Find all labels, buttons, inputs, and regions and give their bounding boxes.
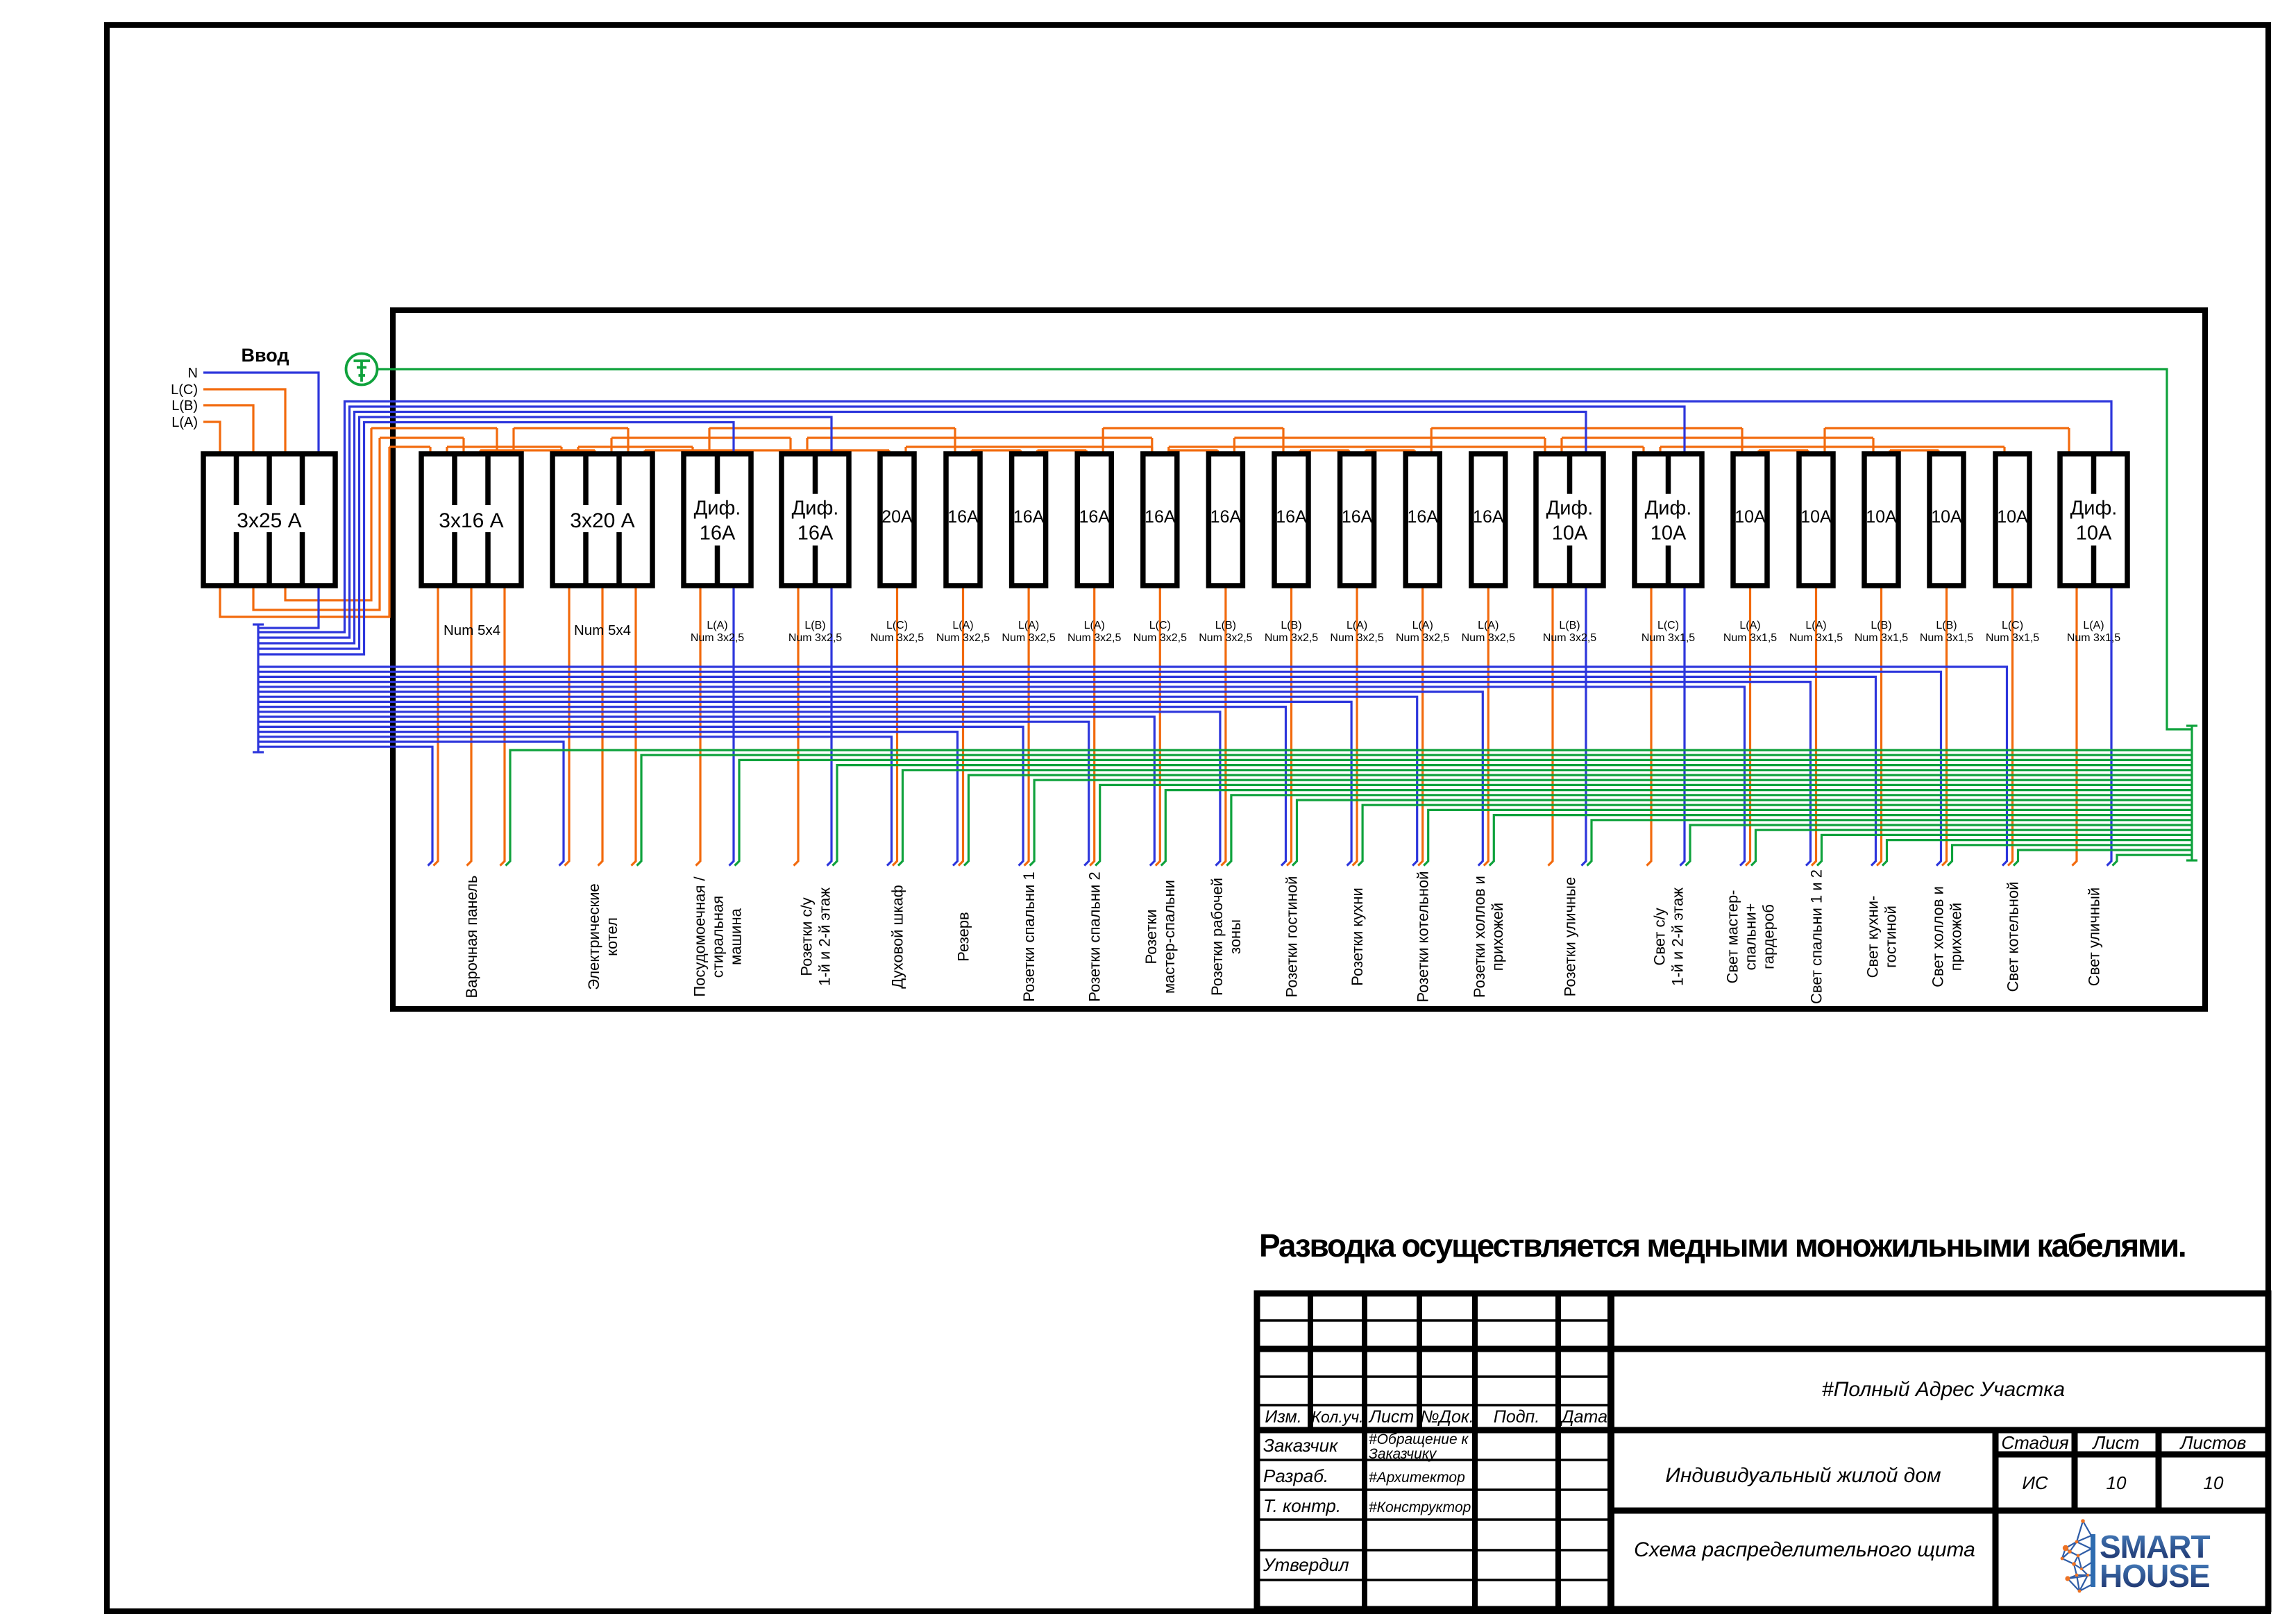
svg-text:Свет холлов и: Свет холлов и bbox=[1929, 886, 1946, 987]
svg-text:L(B): L(B) bbox=[1936, 620, 1957, 631]
svg-text:Num 3x1,5: Num 3x1,5 bbox=[1789, 632, 1843, 644]
svg-text:Розетки гостиной: Розетки гостиной bbox=[1283, 876, 1300, 998]
svg-text:HOUSE: HOUSE bbox=[2100, 1558, 2210, 1594]
svg-text:L(A): L(A) bbox=[2083, 620, 2104, 631]
svg-text:Диф.: Диф. bbox=[1645, 497, 1692, 519]
svg-text:Розетки холлов и: Розетки холлов и bbox=[1471, 876, 1488, 998]
svg-text:L(C): L(C) bbox=[2002, 620, 2023, 631]
svg-text:Розетки спальни 2: Розетки спальни 2 bbox=[1086, 872, 1104, 1001]
svg-text:Num 3x2,5: Num 3x2,5 bbox=[1265, 632, 1318, 644]
svg-text:L(B): L(B) bbox=[1559, 620, 1580, 631]
svg-text:Розетки уличные: Розетки уличные bbox=[1561, 877, 1578, 996]
svg-text:3x20 А: 3x20 А bbox=[570, 509, 634, 532]
svg-text:L(C): L(C) bbox=[171, 382, 198, 398]
svg-text:16А: 16А bbox=[1473, 507, 1504, 527]
svg-text:10А: 10А bbox=[1800, 507, 1832, 527]
svg-text:L(B): L(B) bbox=[1281, 620, 1301, 631]
svg-text:16А: 16А bbox=[1276, 507, 1307, 527]
svg-text:16А: 16А bbox=[1407, 507, 1438, 527]
svg-text:Розетки рабочей: Розетки рабочей bbox=[1208, 878, 1226, 996]
svg-text:3x16 А: 3x16 А bbox=[439, 509, 503, 532]
svg-text:L(A): L(A) bbox=[952, 620, 973, 631]
svg-text:1-й и 2-й этаж: 1-й и 2-й этаж bbox=[816, 887, 833, 986]
svg-text:L(B): L(B) bbox=[804, 620, 825, 631]
svg-text:Num 3x1,5: Num 3x1,5 bbox=[1641, 632, 1695, 644]
svg-text:Num 3x1,5: Num 3x1,5 bbox=[1986, 632, 2039, 644]
svg-text:Num 3x2,5: Num 3x2,5 bbox=[1067, 632, 1121, 644]
svg-text:Духовой шкаф: Духовой шкаф bbox=[888, 885, 906, 989]
svg-text:Num 3x1,5: Num 3x1,5 bbox=[1855, 632, 1908, 644]
svg-text:ИС: ИС bbox=[2022, 1472, 2048, 1493]
svg-text:Заказчик: Заказчик bbox=[1263, 1435, 1339, 1456]
svg-text:Свет мастер-: Свет мастер- bbox=[1723, 890, 1741, 983]
svg-text:#Архитектор: #Архитектор bbox=[1369, 1470, 1465, 1486]
svg-text:Индивидуальный жилой дом: Индивидуальный жилой дом bbox=[1665, 1464, 1941, 1487]
svg-text:16А: 16А bbox=[1145, 507, 1176, 527]
svg-text:L(A): L(A) bbox=[1018, 620, 1039, 631]
svg-text:Заказчику: Заказчику bbox=[1369, 1446, 1437, 1462]
svg-text:Num 3x1,5: Num 3x1,5 bbox=[2067, 632, 2120, 644]
svg-text:Свет спальни 1 и 2: Свет спальни 1 и 2 bbox=[1807, 869, 1825, 1004]
svg-text:Num 3x2,5: Num 3x2,5 bbox=[1543, 632, 1596, 644]
svg-text:L(B): L(B) bbox=[171, 398, 198, 414]
svg-text:Num 3x1,5: Num 3x1,5 bbox=[1723, 632, 1777, 644]
svg-text:№Док.: №Док. bbox=[1420, 1407, 1474, 1427]
svg-text:L(B): L(B) bbox=[1215, 620, 1236, 631]
svg-text:16А: 16А bbox=[1342, 507, 1373, 527]
svg-text:Подп.: Подп. bbox=[1494, 1407, 1540, 1427]
svg-text:L(A): L(A) bbox=[707, 620, 727, 631]
svg-text:L(A): L(A) bbox=[171, 415, 198, 430]
svg-text:Разраб.: Разраб. bbox=[1263, 1465, 1328, 1486]
svg-text:Розетки спальни 1: Розетки спальни 1 bbox=[1020, 872, 1038, 1001]
svg-text:L(A): L(A) bbox=[1084, 620, 1105, 631]
svg-text:Свет котельной: Свет котельной bbox=[2004, 882, 2021, 992]
svg-text:стиральная: стиральная bbox=[709, 896, 726, 978]
svg-text:Изм.: Изм. bbox=[1265, 1407, 1301, 1427]
svg-text:20А: 20А bbox=[881, 507, 913, 527]
svg-text:#Обращение к: #Обращение к bbox=[1369, 1431, 1469, 1447]
svg-text:10А: 10А bbox=[2076, 522, 2112, 545]
svg-text:Num 5x4: Num 5x4 bbox=[574, 622, 631, 638]
svg-text:Резерв: Резерв bbox=[954, 912, 972, 961]
svg-text:10А: 10А bbox=[1651, 522, 1687, 545]
svg-text:L(C): L(C) bbox=[1149, 620, 1171, 631]
svg-text:L(A): L(A) bbox=[1412, 620, 1433, 631]
svg-text:мастер-спальни: мастер-спальни bbox=[1160, 880, 1178, 994]
svg-text:10А: 10А bbox=[1552, 522, 1588, 545]
svg-text:Свет уличный: Свет уличный bbox=[2085, 887, 2102, 986]
svg-text:Num 3x2,5: Num 3x2,5 bbox=[1396, 632, 1449, 644]
svg-text:16А: 16А bbox=[947, 507, 979, 527]
svg-text:#Конструктор: #Конструктор bbox=[1369, 1499, 1471, 1515]
svg-text:Утвердил: Утвердил bbox=[1263, 1554, 1349, 1575]
svg-text:10А: 10А bbox=[1931, 507, 1962, 527]
svg-text:Розетки с/у: Розетки с/у bbox=[797, 897, 815, 976]
svg-text:Num 3x2,5: Num 3x2,5 bbox=[1330, 632, 1383, 644]
svg-text:Num 3x2,5: Num 3x2,5 bbox=[1002, 632, 1055, 644]
svg-text:зоны: зоны bbox=[1226, 919, 1244, 954]
svg-text:Num 3x2,5: Num 3x2,5 bbox=[1133, 632, 1187, 644]
svg-text:Диф.: Диф. bbox=[694, 497, 741, 519]
svg-text:L(A): L(A) bbox=[1347, 620, 1367, 631]
svg-text:Стадия: Стадия bbox=[2001, 1432, 2068, 1453]
svg-text:16А: 16А bbox=[1079, 507, 1110, 527]
svg-text:Num 3x2,5: Num 3x2,5 bbox=[788, 632, 842, 644]
svg-text:Дата: Дата bbox=[1560, 1407, 1607, 1427]
svg-text:Листов: Листов bbox=[2179, 1432, 2247, 1453]
svg-text:10: 10 bbox=[2204, 1472, 2224, 1493]
svg-text:Ввод: Ввод bbox=[241, 345, 289, 366]
svg-text:Схема распределительного щита: Схема распределительного щита bbox=[1634, 1538, 1975, 1561]
svg-text:Num 3x1,5: Num 3x1,5 bbox=[1920, 632, 1973, 644]
svg-text:1-й и 2-й этаж: 1-й и 2-й этаж bbox=[1669, 887, 1686, 986]
svg-text:Розетки котельной: Розетки котельной bbox=[1415, 871, 1432, 1002]
svg-text:Свет с/у: Свет с/у bbox=[1651, 908, 1668, 965]
svg-text:L(A): L(A) bbox=[1478, 620, 1499, 631]
svg-text:Num 3x2,5: Num 3x2,5 bbox=[936, 632, 990, 644]
svg-text:Свет кухни-: Свет кухни- bbox=[1864, 896, 1881, 978]
svg-text:Посудомоечная /: Посудомоечная / bbox=[691, 876, 708, 996]
svg-text:Num 3x2,5: Num 3x2,5 bbox=[691, 632, 744, 644]
svg-text:16А: 16А bbox=[1210, 507, 1242, 527]
svg-text:10А: 10А bbox=[1997, 507, 2028, 527]
svg-text:спальни+: спальни+ bbox=[1741, 903, 1759, 971]
svg-text:Диф.: Диф. bbox=[792, 497, 839, 519]
svg-text:L(C): L(C) bbox=[886, 620, 908, 631]
svg-text:Разводка осуществляется медным: Разводка осуществляется медными моножиль… bbox=[1259, 1227, 2186, 1264]
svg-text:гостиной: гостиной bbox=[1882, 906, 1899, 968]
svg-text:Num 3x2,5: Num 3x2,5 bbox=[1199, 632, 1252, 644]
svg-text:#Полный Адрес Участка: #Полный Адрес Участка bbox=[1822, 1378, 2065, 1401]
svg-text:машина: машина bbox=[727, 908, 744, 965]
svg-text:L(C): L(C) bbox=[1657, 620, 1679, 631]
svg-text:Num 3x2,5: Num 3x2,5 bbox=[870, 632, 924, 644]
svg-text:прихожей: прихожей bbox=[1947, 903, 1964, 971]
svg-text:L(A): L(A) bbox=[1805, 620, 1826, 631]
svg-text:L(B): L(B) bbox=[1871, 620, 1891, 631]
svg-text:16А: 16А bbox=[700, 522, 736, 545]
svg-text:Розетки: Розетки bbox=[1142, 909, 1160, 964]
svg-text:котел: котел bbox=[603, 917, 621, 956]
svg-text:Num 3x2,5: Num 3x2,5 bbox=[1462, 632, 1515, 644]
svg-text:Диф.: Диф. bbox=[2070, 497, 2118, 519]
svg-text:N: N bbox=[188, 366, 198, 381]
svg-text:гардероб: гардероб bbox=[1759, 904, 1777, 969]
svg-text:10А: 10А bbox=[1734, 507, 1766, 527]
svg-text:Num 5x4: Num 5x4 bbox=[444, 622, 500, 638]
svg-text:10А: 10А bbox=[1866, 507, 1897, 527]
svg-text:3x25 А: 3x25 А bbox=[237, 509, 301, 532]
svg-text:Т. контр.: Т. контр. bbox=[1263, 1495, 1341, 1516]
svg-text:Варочная панель: Варочная панель bbox=[463, 876, 480, 999]
svg-text:Диф.: Диф. bbox=[1546, 497, 1594, 519]
svg-text:10: 10 bbox=[2107, 1472, 2127, 1493]
svg-text:16А: 16А bbox=[1013, 507, 1045, 527]
svg-text:Электрические: Электрические bbox=[585, 883, 602, 989]
svg-text:L(A): L(A) bbox=[1739, 620, 1760, 631]
svg-text:16А: 16А bbox=[797, 522, 834, 545]
svg-text:прихожей: прихожей bbox=[1489, 903, 1506, 971]
svg-text:Лист: Лист bbox=[2092, 1432, 2140, 1453]
svg-text:Кол.уч.: Кол.уч. bbox=[1312, 1408, 1364, 1426]
svg-text:Розетки кухни: Розетки кухни bbox=[1349, 887, 1366, 985]
svg-text:Лист: Лист bbox=[1368, 1407, 1414, 1427]
